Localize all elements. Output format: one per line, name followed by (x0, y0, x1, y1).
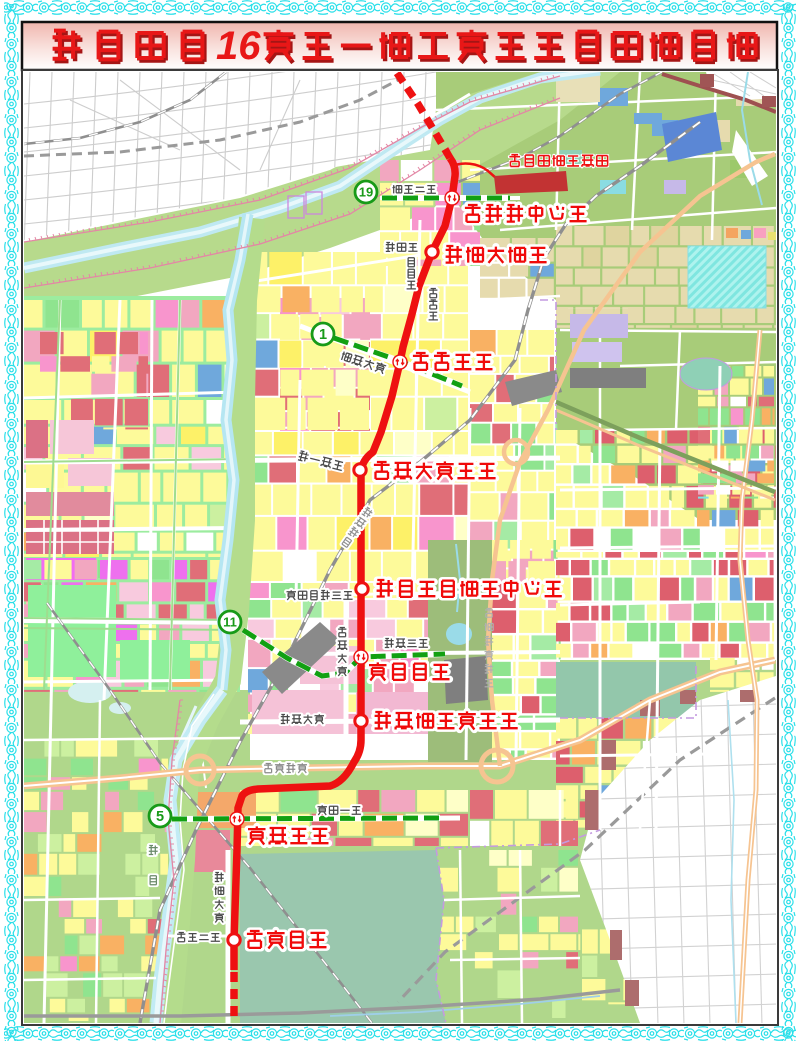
svg-text:1: 1 (319, 327, 327, 343)
svg-text:5: 5 (156, 809, 164, 825)
svg-text:19: 19 (359, 185, 373, 200)
svg-text:16: 16 (216, 24, 261, 68)
svg-text:11: 11 (223, 615, 237, 630)
